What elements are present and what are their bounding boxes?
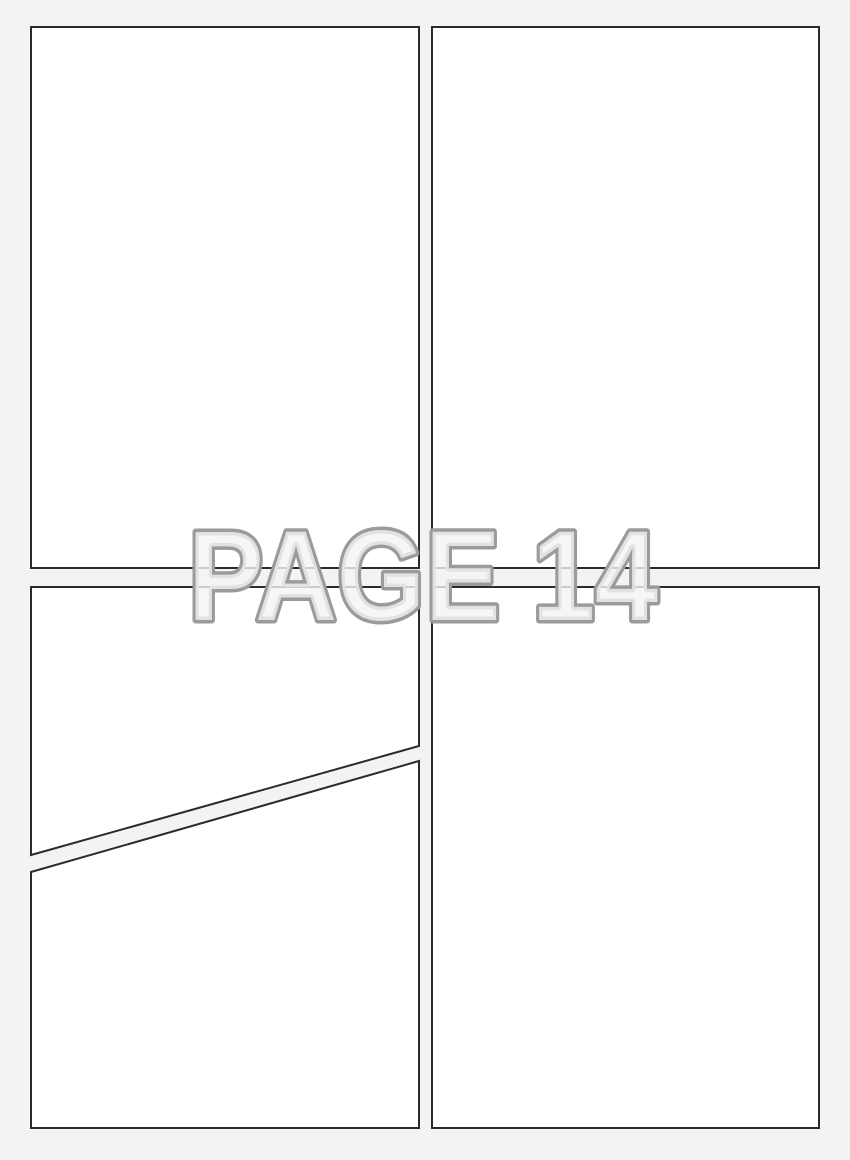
page-number-watermark: PAGE 14: [188, 505, 658, 648]
panel-top-right: [432, 27, 819, 568]
panel-grid: PAGE 14: [0, 0, 850, 1160]
panel-top-left: [31, 27, 419, 568]
panel-bottom-right: [432, 587, 819, 1128]
comic-page-template: PAGE 14: [0, 0, 850, 1160]
